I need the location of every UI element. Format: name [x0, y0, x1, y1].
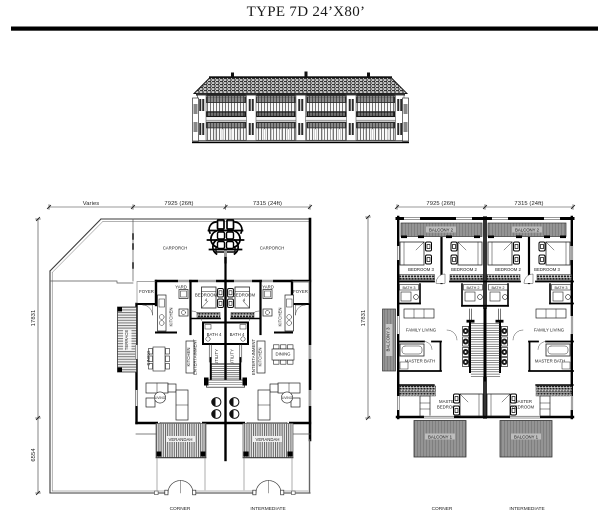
- svg-text:BALCONY 2: BALCONY 2: [429, 227, 454, 232]
- svg-text:VERANDAH: VERANDAH: [256, 437, 280, 442]
- svg-text:YARD: YARD: [175, 285, 187, 290]
- svg-text:17831: 17831: [361, 310, 367, 327]
- svg-text:UTILITY: UTILITY: [214, 349, 219, 365]
- svg-text:CORNER: CORNER: [170, 506, 191, 512]
- svg-text:VERANDAH: VERANDAH: [169, 437, 193, 442]
- svg-text:BALCONY 1: BALCONY 1: [428, 434, 453, 439]
- svg-text:FOYER: FOYER: [139, 289, 154, 294]
- svg-text:BATH 4: BATH 4: [230, 332, 245, 337]
- svg-text:INTERMEDIATE: INTERMEDIATE: [509, 506, 544, 512]
- svg-text:BEDROOM 3: BEDROOM 3: [408, 267, 434, 272]
- svg-text:ENTERTAINMENT: ENTERTAINMENT: [251, 339, 256, 376]
- svg-text:BATH 2: BATH 2: [466, 286, 479, 290]
- svg-text:ENTERTAINMENT: ENTERTAINMENT: [193, 339, 198, 376]
- svg-text:7315 (24ft): 7315 (24ft): [514, 201, 543, 207]
- svg-text:CORNER: CORNER: [432, 506, 453, 512]
- svg-text:FAMILY LIVING: FAMILY LIVING: [406, 328, 437, 333]
- svg-text:FOYER: FOYER: [293, 289, 308, 294]
- svg-text:7925 (26ft): 7925 (26ft): [164, 201, 193, 207]
- svg-text:BATH 2: BATH 2: [491, 286, 504, 290]
- svg-text:BATH 3: BATH 3: [554, 286, 567, 290]
- svg-text:BEDROOM 3: BEDROOM 3: [534, 267, 560, 272]
- svg-text:INTERMEDIATE: INTERMEDIATE: [250, 506, 285, 512]
- svg-text:BALCONY 2: BALCONY 2: [515, 227, 540, 232]
- svg-text:FAMILY LIVING: FAMILY LIVING: [534, 328, 565, 333]
- svg-text:DINING: DINING: [146, 350, 151, 366]
- svg-text:LIVING: LIVING: [282, 396, 293, 400]
- svg-text:17831: 17831: [31, 310, 37, 327]
- svg-text:KITCHEN: KITCHEN: [258, 348, 263, 367]
- svg-text:KITCHEN: KITCHEN: [186, 348, 191, 367]
- svg-text:KITCHEN: KITCHEN: [169, 308, 174, 327]
- svg-text:LIVING: LIVING: [155, 396, 166, 400]
- svg-text:CARPORCH: CARPORCH: [260, 246, 285, 251]
- svg-text:7315 (24ft): 7315 (24ft): [253, 201, 282, 207]
- svg-text:BEDROOM 2: BEDROOM 2: [495, 267, 521, 272]
- svg-text:MASTER BATH: MASTER BATH: [535, 359, 565, 364]
- svg-text:BATH 4: BATH 4: [207, 332, 222, 337]
- svg-text:BEDROOM 2: BEDROOM 2: [451, 267, 477, 272]
- svg-text:Varies: Varies: [83, 201, 100, 207]
- svg-text:YARD: YARD: [262, 285, 274, 290]
- svg-text:KITCHEN: KITCHEN: [278, 308, 283, 327]
- svg-text:CARPORCH: CARPORCH: [163, 246, 188, 251]
- svg-text:TERRACE: TERRACE: [124, 330, 129, 351]
- svg-text:UTILITY: UTILITY: [230, 349, 235, 365]
- svg-text:6554: 6554: [31, 448, 37, 462]
- svg-text:BALCONY 1: BALCONY 1: [514, 434, 539, 439]
- svg-text:BATH 3: BATH 3: [402, 286, 415, 290]
- svg-text:BALCONY 3: BALCONY 3: [386, 327, 391, 352]
- svg-text:TYPE 7D 24’X80’: TYPE 7D 24’X80’: [247, 4, 366, 20]
- svg-text:MASTER BATH: MASTER BATH: [405, 359, 435, 364]
- svg-text:DINING: DINING: [275, 352, 291, 357]
- svg-text:7925 (26ft): 7925 (26ft): [426, 201, 455, 207]
- svg-text:MASTER: MASTER: [514, 399, 532, 404]
- svg-text:BEDROOM: BEDROOM: [512, 405, 535, 410]
